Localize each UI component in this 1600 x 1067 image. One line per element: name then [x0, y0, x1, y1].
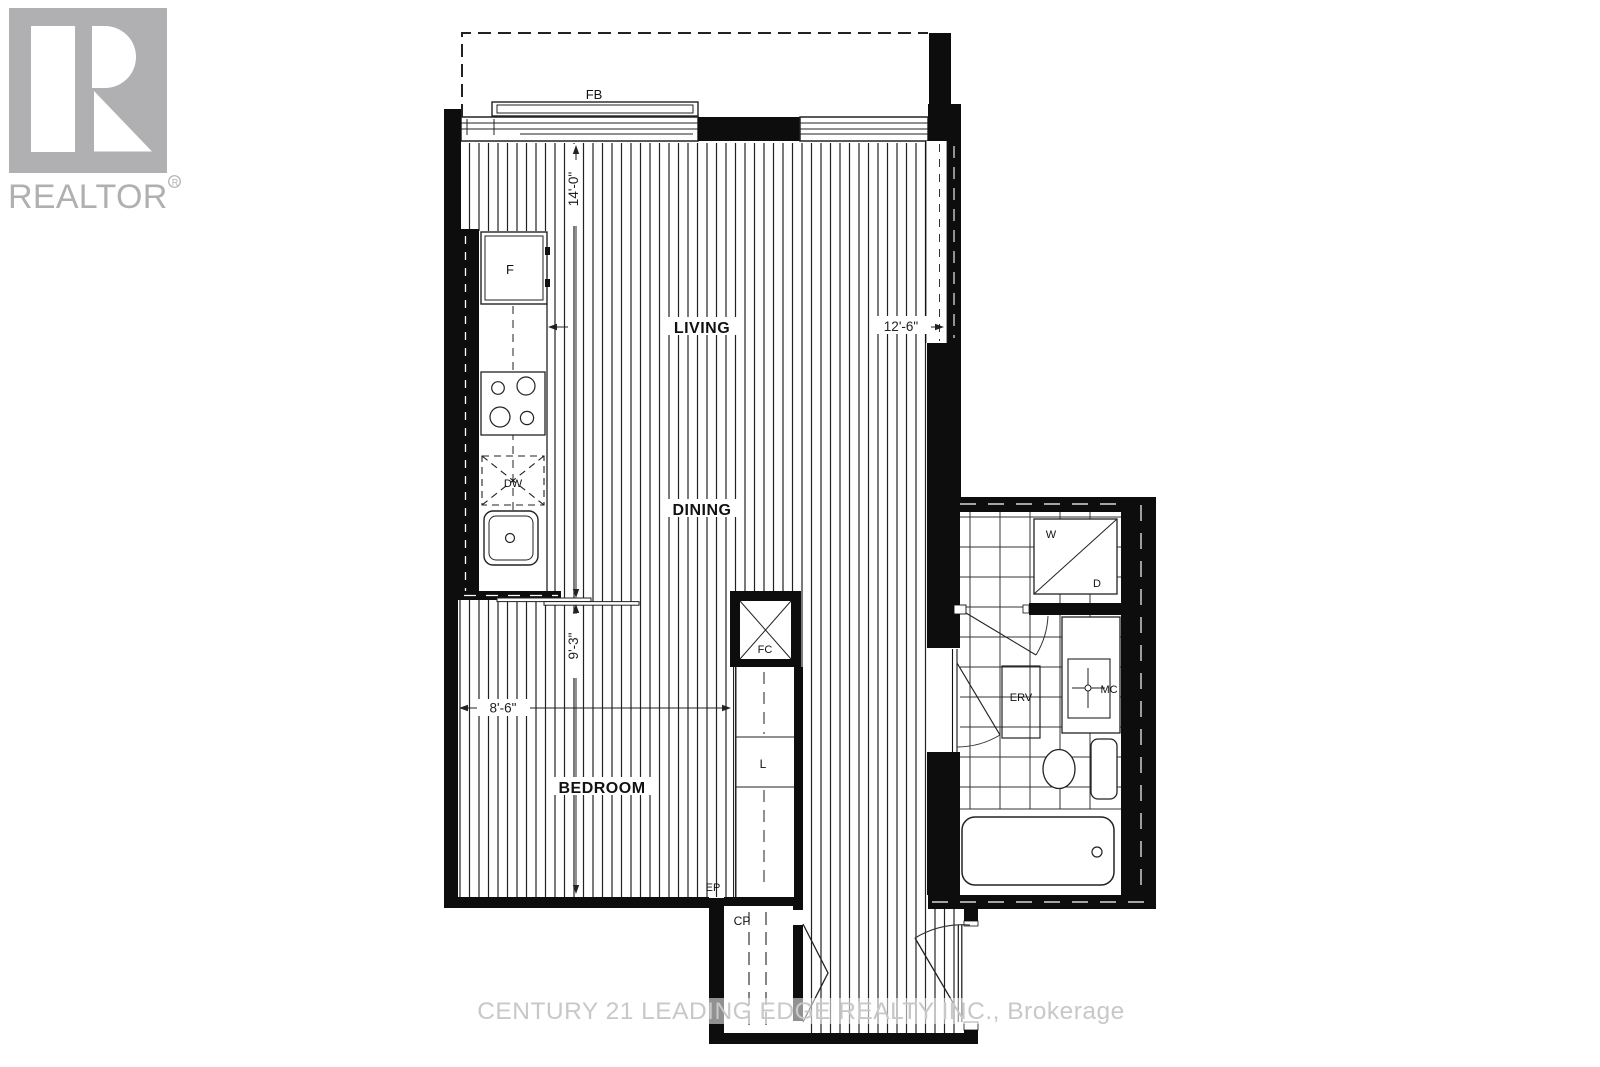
svg-text:BEDROOM: BEDROOM — [558, 780, 645, 797]
svg-text:W: W — [1046, 529, 1057, 541]
svg-text:12'-6": 12'-6" — [884, 319, 919, 334]
svg-text:F: F — [506, 262, 514, 277]
svg-text:R: R — [172, 178, 179, 188]
svg-text:14'-0": 14'-0" — [566, 172, 581, 207]
svg-text:REALTOR: REALTOR — [8, 178, 168, 216]
svg-text:CENTURY 21 LEADING EDGE REALTY: CENTURY 21 LEADING EDGE REALTY INC., Bro… — [477, 998, 1125, 1025]
svg-text:EP: EP — [706, 882, 721, 894]
svg-text:LIVING: LIVING — [674, 320, 730, 337]
svg-text:CP: CP — [734, 914, 751, 928]
svg-text:DW: DW — [504, 478, 523, 490]
svg-text:8'-6": 8'-6" — [490, 701, 517, 716]
svg-text:FC: FC — [758, 644, 773, 656]
svg-text:MC: MC — [1100, 684, 1117, 696]
svg-text:D: D — [1093, 578, 1101, 590]
svg-text:L: L — [760, 757, 767, 771]
svg-text:9'-3": 9'-3" — [566, 632, 581, 659]
svg-text:DINING: DINING — [673, 502, 732, 519]
svg-text:ERV: ERV — [1010, 692, 1033, 704]
svg-text:FB: FB — [586, 87, 603, 102]
